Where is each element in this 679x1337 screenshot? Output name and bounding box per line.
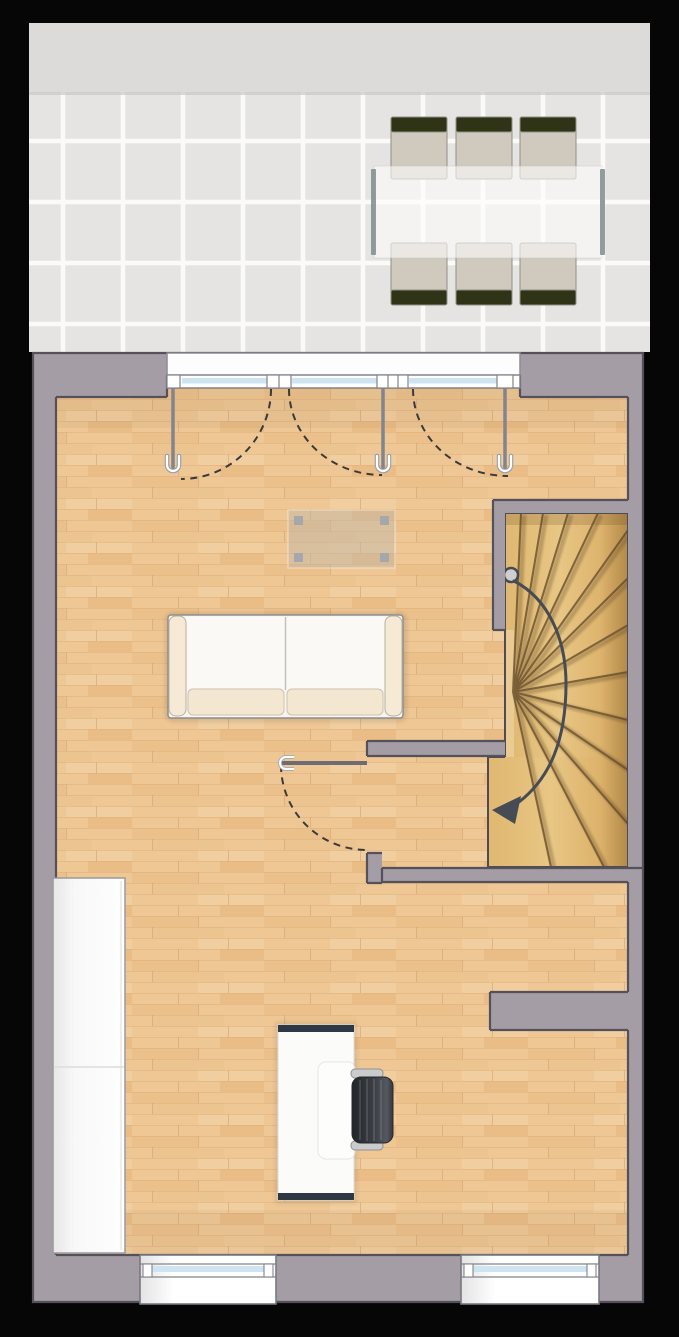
wall-stair-bottom	[382, 868, 643, 882]
wall-bottom-left	[33, 1255, 140, 1302]
window-glass	[152, 1266, 264, 1272]
wall-right	[628, 353, 643, 1302]
wall-stair-top	[493, 500, 628, 513]
stair-right-shadow	[600, 513, 628, 867]
wall-door-jamb-stub	[367, 853, 382, 883]
staircase	[488, 513, 631, 869]
table-right-edge	[600, 169, 605, 255]
wall-stair-left	[493, 500, 505, 630]
terrace-band-shadow-line	[29, 92, 650, 95]
wall-niche-stub	[490, 992, 628, 1030]
window	[140, 1255, 276, 1304]
sofa-armrest-left	[169, 616, 186, 716]
patio-door-glass	[182, 378, 497, 384]
wall-bottom-middle	[276, 1255, 461, 1302]
wall-door-header	[367, 741, 505, 756]
sofa	[165, 612, 407, 722]
walk-line-start-dot	[504, 568, 518, 582]
wall-bottom-right	[599, 1255, 643, 1302]
office-chair-backrest	[352, 1077, 393, 1143]
desk-top-edge	[278, 1025, 354, 1032]
terrace-dining-table	[371, 166, 605, 258]
sofa-seat-cushion	[188, 689, 284, 715]
floor-plan-drawing	[0, 0, 679, 1337]
floor-plan-canvas	[0, 0, 679, 1337]
terrace	[29, 23, 650, 352]
patio-door-threshold	[167, 353, 520, 376]
sofa-seat-cushion	[287, 689, 383, 715]
coffee-table	[288, 510, 395, 568]
window-glass	[473, 1266, 587, 1272]
desk-bottom-edge	[278, 1193, 354, 1200]
stair-top-shadow	[505, 513, 628, 525]
office-chair	[318, 1062, 393, 1159]
table-left-edge	[371, 169, 376, 255]
office-chair-seat-under-desk	[318, 1062, 356, 1159]
wardrobe	[53, 878, 125, 1253]
sofa-armrest-right	[385, 616, 402, 716]
window	[461, 1255, 599, 1304]
wall-top-right-block	[520, 353, 643, 397]
terrace-upper-band	[29, 23, 650, 92]
